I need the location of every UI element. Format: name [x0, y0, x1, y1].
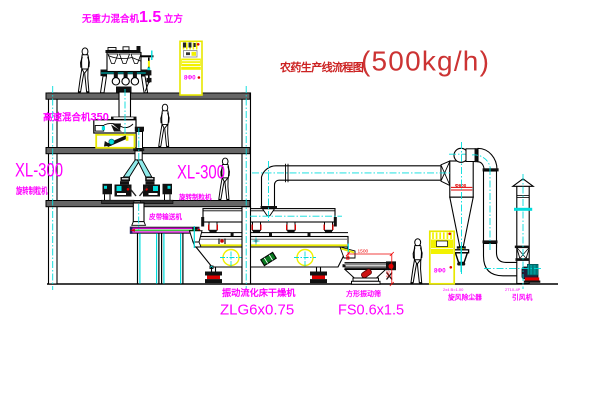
svg-text:2x4 B=1.00: 2x4 B=1.00 — [443, 287, 464, 292]
svg-text:8Φ0: 8Φ0 — [434, 269, 446, 275]
svg-text:FS0.6x1.5: FS0.6x1.5 — [338, 303, 404, 319]
svg-text:旋风除尘器: 旋风除尘器 — [447, 293, 482, 302]
svg-text:方形振动筛: 方形振动筛 — [346, 289, 381, 298]
svg-text:旋转制粒机: 旋转制粒机 — [15, 185, 47, 196]
svg-text:8Φ0: 8Φ0 — [184, 76, 196, 82]
svg-text:(500kg/h): (500kg/h) — [361, 46, 490, 77]
svg-text:Φ600: Φ600 — [455, 183, 467, 188]
svg-text:无重力混合机1.5 立方: 无重力混合机1.5 立方 — [81, 9, 183, 26]
svg-text:XL-300: XL-300 — [177, 163, 225, 184]
svg-text:ZLG6x0.75: ZLG6x0.75 — [220, 302, 294, 319]
svg-text:XL-300: XL-300 — [15, 161, 63, 182]
svg-text:1500: 1500 — [358, 249, 369, 255]
svg-text:545: 545 — [386, 270, 391, 278]
svg-text:振动流化床干燥机: 振动流化床干燥机 — [222, 287, 296, 298]
svg-text:旋转制粒机: 旋转制粒机 — [178, 192, 212, 201]
svg-text:农药生产线流程图: 农药生产线流程图 — [279, 60, 364, 74]
svg-text:引风机: 引风机 — [512, 293, 533, 302]
svg-text:高速混合机350: 高速混合机350 — [43, 112, 109, 124]
svg-text:皮带输送机: 皮带输送机 — [149, 212, 182, 221]
svg-text:2T10-4P: 2T10-4P — [505, 287, 521, 292]
